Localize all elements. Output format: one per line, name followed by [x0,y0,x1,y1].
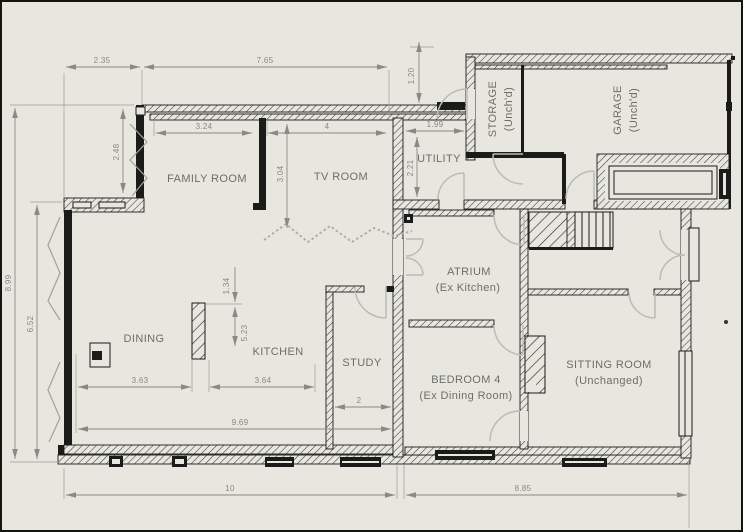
kitchen-pillar [192,303,205,359]
room-label-garage-sub: (Unch'd) [628,88,640,132]
wall-family-tv [259,118,266,210]
fixtures [90,228,728,467]
wall-garage-north-innerleaf [475,65,667,69]
wall-hall-south-1 [393,200,439,209]
room-label-kitchen: KITCHEN [252,346,303,358]
dim-1-99: 1.99 [427,120,444,129]
room-label-storage: STORAGE [487,81,499,137]
door-atrium-west-a [406,239,423,256]
dim-6-52: 6.52 [26,315,35,332]
pier-nw-top [136,107,145,115]
wall-sitting-north-2 [654,289,685,295]
dim-3-64: 3.64 [255,376,272,385]
garage-east-tick [726,102,732,111]
room-label-bedroom4: BEDROOM 4 [431,374,501,386]
dim-1-20: 1.20 [407,67,416,84]
door-bedroom-north [494,325,523,355]
dim-7-65: 7.65 [257,56,274,65]
door-sitting [629,292,655,318]
dim-2-48: 2.48 [112,143,121,160]
stairs-divider [567,212,575,248]
wall-party [393,118,403,457]
room-label-tv: TV ROOM [314,171,368,183]
glazing-zigzag-west-upper [48,217,60,320]
floor-plan-drawing: 2.35 7.65 1.20 3.24 4 1.99 2.21 2.48 3.0… [2,2,741,530]
wall-bedroom-north [409,320,494,327]
pier-step-2 [99,202,125,208]
wall-atrium-north-inner [409,210,494,216]
room-label-study: STUDY [342,357,382,369]
wall-north-outer [142,105,472,112]
wall-storage-garage-divider [521,65,524,154]
dim-10: 10 [225,484,235,493]
demolished-wall-zigzag [264,224,412,242]
room-label-family: FAMILY ROOM [167,173,247,185]
dim-9-69: 9.69 [232,418,249,427]
room-label-bedroom4-sub: (Ex Dining Room) [419,390,512,402]
glazing-zigzag-west-lower [48,362,60,442]
room-label-utility: UTILITY [417,153,461,165]
wall-study-west [326,286,333,449]
dim-2-35: 2.35 [94,56,111,65]
door-utility [438,173,464,199]
dim-2: 2 [357,396,362,405]
porch-inner-line [614,171,712,194]
west-wall-fixture-core [92,351,102,360]
room-label-sitting: SITTING ROOM [566,359,651,371]
door-storage-hall [493,154,523,184]
origin-dot [724,320,728,324]
wall-nw-glazed [136,105,144,210]
back-door-step [689,228,699,281]
dim-2-21: 2.21 [406,159,415,176]
wall-north-inner [150,114,472,120]
wall-hall-south-2 [464,200,565,209]
room-label-sitting-sub: (Unchanged) [575,375,643,387]
stairs-treads-frame [575,212,613,248]
stairs-cupboard-hatch [529,212,569,248]
dim-3-24: 3.24 [196,122,213,131]
wall-storage-south [466,152,564,158]
dim-1-34: 1.34 [222,277,231,294]
dim-5-23: 5.23 [240,324,249,341]
room-label-storage-sub: (Unch'd) [503,87,515,131]
corner-tick-ne [731,56,735,60]
stairs-bottom-edge [529,247,613,250]
wall-study-north-jamb [386,286,394,292]
room-label-garage: GARAGE [612,85,624,134]
wall-garage-north [466,54,732,63]
door-hall-atrium [494,215,524,245]
wall-sitting-north-1 [528,289,628,295]
wall-study-north [326,286,364,292]
dim-3-63: 3.63 [132,376,149,385]
room-label-atrium: ATRIUM [447,266,491,278]
dim-3-04: 3.04 [276,165,285,182]
chimney-notch [526,383,536,392]
wall-west [64,210,72,448]
wall-south-inner-left [64,445,397,454]
floor-plan-canvas[interactable]: 2.35 7.65 1.20 3.24 4 1.99 2.21 2.48 3.0… [0,0,743,532]
dim-8-99: 8.99 [4,274,13,291]
room-label-atrium-sub: (Ex Kitchen) [436,282,501,294]
staircase [529,212,613,250]
door-hall-porch [566,171,594,199]
atrium-corner-marker-dot [407,217,410,220]
pier-step-1 [73,202,91,208]
room-label-dining: DINING [124,333,165,345]
wall-family-tv-foot [253,203,266,210]
porch-door-slit [723,173,726,195]
dim-4: 4 [325,122,330,131]
door-atrium-west-b [406,258,423,275]
dim-8-85: 8.85 [515,484,532,493]
door-bedroom-east [490,411,520,441]
